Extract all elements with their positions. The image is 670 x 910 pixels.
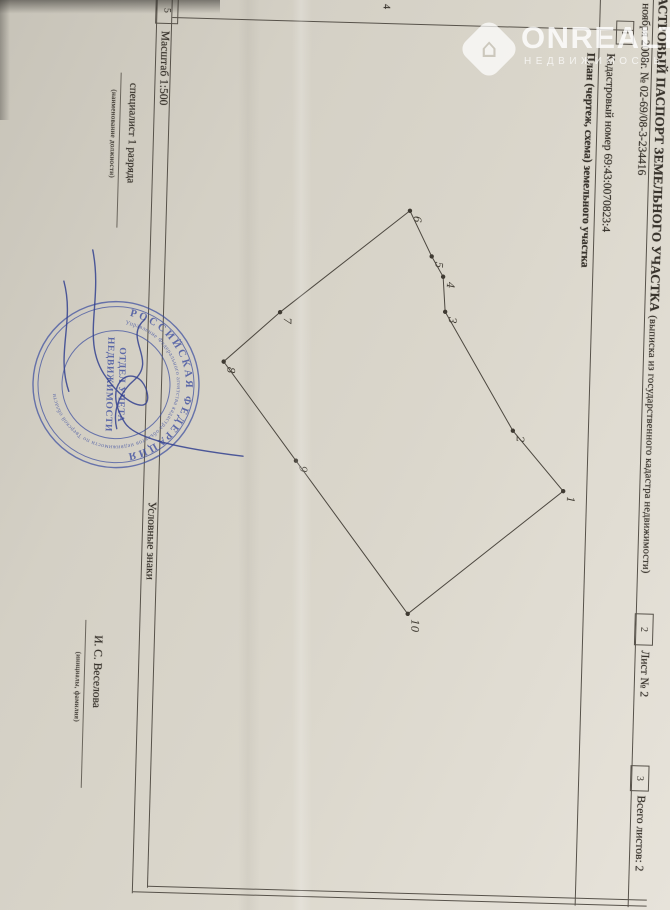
- stamp-center-line1: ОТДЕЛ УЧЕТА: [115, 347, 127, 422]
- document-page: КАДАСТРОВЫЙ ПАСПОРТ ЗЕМЕЛЬНОГО УЧАСТКА (…: [0, 0, 670, 910]
- plot-vertex-label: 8: [224, 367, 236, 374]
- plot-vertex-dot: [443, 310, 448, 315]
- plot-vertex-label: 3: [446, 317, 458, 324]
- plot-vertex-dot: [441, 274, 446, 279]
- plan-drawing: 12345678910 РОССИЙСКАЯ ФЕДЕРАЦИЯ Управле…: [0, 0, 670, 910]
- scanned-photo: КАДАСТРОВЫЙ ПАСПОРТ ЗЕМЕЛЬНОГО УЧАСТКА (…: [0, 0, 670, 910]
- plot-vertex-label: 1: [564, 496, 576, 503]
- plot-vertex-label: 5: [432, 261, 444, 268]
- plot-boundary: [217, 206, 571, 618]
- plot-vertex-label: 9: [297, 466, 309, 473]
- plot-vertex-label: 10: [408, 619, 420, 633]
- official-stamp: РОССИЙСКАЯ ФЕДЕРАЦИЯ Управление Федераль…: [31, 299, 202, 470]
- handwritten-signature: [59, 249, 249, 456]
- plot-vertex-label: 6: [411, 216, 423, 223]
- land-plot-polygon: 12345678910: [214, 203, 584, 637]
- plot-vertex-label: 2: [514, 435, 526, 443]
- stamp-center-line2: НЕДВИЖИМОСТИ: [103, 337, 116, 432]
- plot-vertex-dot: [429, 254, 434, 259]
- plot-vertex-label: 7: [281, 317, 293, 324]
- plot-vertex-label: 4: [444, 281, 456, 289]
